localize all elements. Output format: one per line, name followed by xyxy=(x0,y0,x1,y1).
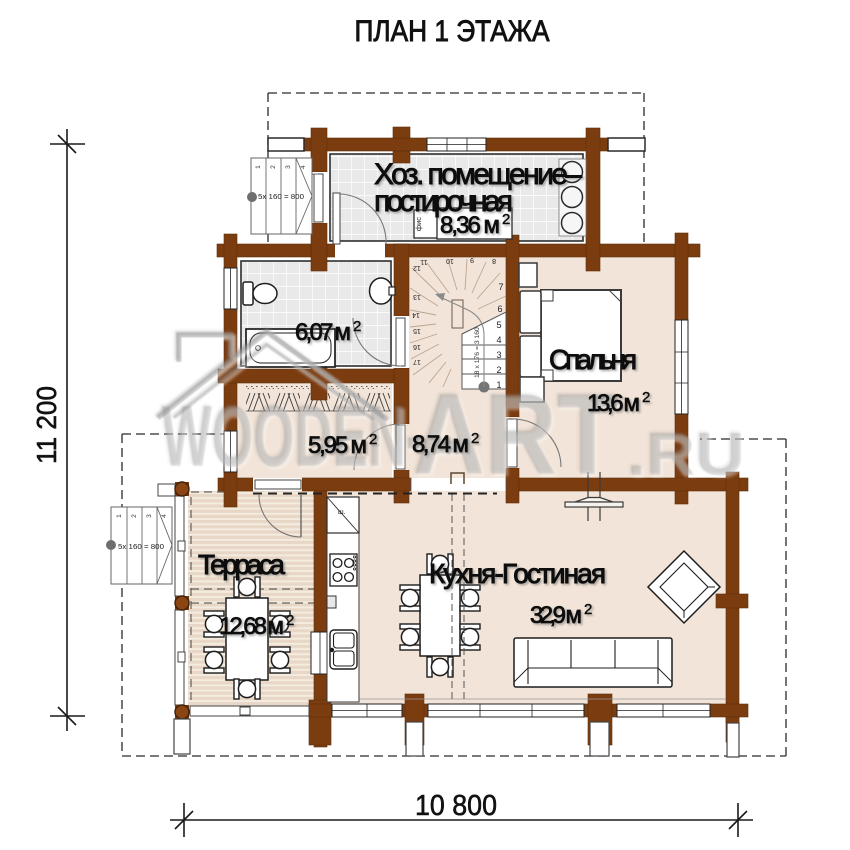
svg-text:2: 2 xyxy=(270,165,277,169)
svg-text:6,07 м: 6,07 м xyxy=(295,319,351,346)
svg-text:5,95 м: 5,95 м xyxy=(308,432,367,459)
svg-text:2: 2 xyxy=(353,318,361,335)
svg-text:2: 2 xyxy=(642,389,650,406)
svg-text:3: 3 xyxy=(146,514,153,518)
svg-text:15: 15 xyxy=(413,327,421,334)
svg-text:4: 4 xyxy=(300,165,307,169)
svg-text:12: 12 xyxy=(413,264,421,271)
svg-text:3: 3 xyxy=(496,350,501,360)
svg-text:8,74 м: 8,74 м xyxy=(412,431,469,458)
svg-text:13: 13 xyxy=(413,293,421,300)
svg-text:1: 1 xyxy=(255,165,262,169)
svg-text:10 800: 10 800 xyxy=(415,790,497,822)
svg-text:8,36 м: 8,36 м xyxy=(440,212,500,239)
svg-text:16: 16 xyxy=(413,343,421,350)
svg-text:6: 6 xyxy=(497,304,502,314)
svg-text:3: 3 xyxy=(285,165,292,169)
svg-text:14: 14 xyxy=(412,311,420,318)
svg-text:11 200: 11 200 xyxy=(31,386,62,464)
svg-text:Кухня-Гостиная: Кухня-Гостиная xyxy=(429,558,606,589)
svg-text:10: 10 xyxy=(446,257,454,264)
svg-text:2: 2 xyxy=(471,430,479,447)
svg-text:4: 4 xyxy=(161,514,168,518)
svg-text:1: 1 xyxy=(116,514,123,518)
svg-text:2: 2 xyxy=(369,431,377,448)
svg-text:13,6 м: 13,6 м xyxy=(587,390,640,417)
svg-text:5: 5 xyxy=(496,320,501,330)
svg-text:7: 7 xyxy=(498,282,503,292)
svg-text:фис: фис xyxy=(414,217,423,231)
svg-text:11: 11 xyxy=(420,258,427,265)
svg-text:.RU: .RU xyxy=(627,421,745,488)
svg-text:32,9 м: 32,9 м xyxy=(530,602,582,629)
svg-text:12,68 м: 12,68 м xyxy=(219,613,284,640)
svg-text:5х 160 = 800: 5х 160 = 800 xyxy=(258,194,304,201)
svg-text:8: 8 xyxy=(492,257,496,264)
svg-text:Спальня: Спальня xyxy=(549,344,637,375)
svg-text:WOODEN-: WOODEN- xyxy=(162,389,424,485)
svg-text:2: 2 xyxy=(502,211,510,228)
svg-text:17: 17 xyxy=(413,358,421,365)
svg-text:Терраса: Терраса xyxy=(198,549,285,580)
svg-text:2: 2 xyxy=(286,612,294,629)
svg-text:2: 2 xyxy=(584,601,592,618)
svg-text:2: 2 xyxy=(131,514,138,518)
svg-text:ш.: ш. xyxy=(338,509,346,516)
svg-text:5х 160 = 800: 5х 160 = 800 xyxy=(118,544,164,551)
svg-text:4: 4 xyxy=(496,335,501,345)
svg-text:ПЛАН 1 ЭТАЖА: ПЛАН 1 ЭТАЖА xyxy=(355,15,550,48)
svg-text:9: 9 xyxy=(470,256,474,263)
